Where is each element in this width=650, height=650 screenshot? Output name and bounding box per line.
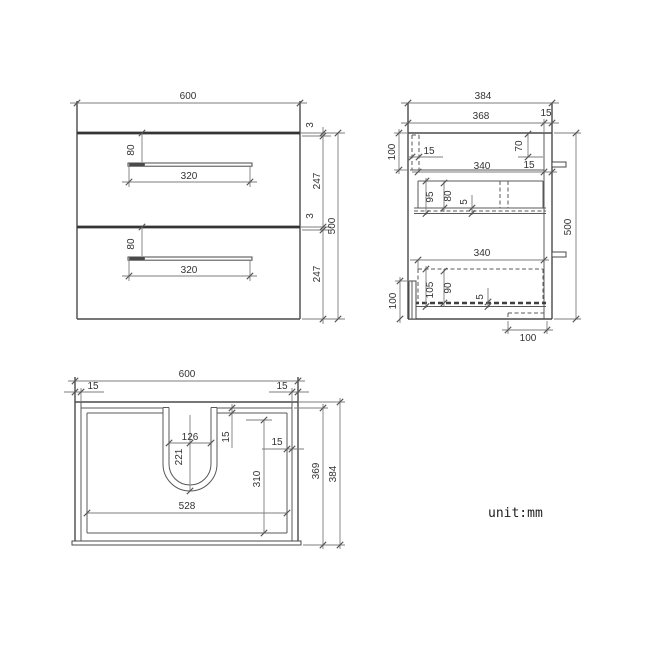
blueprint-page: 600 80 320 80 320 3 247 3 247 500: [0, 0, 650, 650]
front-view-labels: 600 80 320 80 320 3 247 3 247 500: [126, 91, 338, 282]
dim-front-handle-width-1: 320: [181, 171, 198, 182]
dim-top-right-wall: 15: [276, 381, 288, 392]
dim-side-drawer1-side-height: 95: [425, 191, 436, 203]
top-view: 600 15 15 126 221 15 15 310 528 369 384: [64, 369, 345, 549]
dim-top-inner-depth: 369: [311, 462, 322, 479]
dim-top-inner-width: 528: [179, 501, 196, 512]
dim-side-notch-width: 100: [520, 333, 537, 344]
drawer1-handle-cap: [129, 163, 145, 166]
wall-bracket-bottom: [552, 252, 566, 257]
dim-side-drawer2-depth: 340: [474, 248, 491, 259]
top-view-dimensions: [64, 378, 345, 549]
dim-front-mid-gap: 3: [305, 213, 316, 219]
side-view-dimensions: [394, 100, 581, 334]
dim-side-back-panel: 15: [540, 108, 552, 119]
unit-note: unit:mm: [488, 506, 543, 521]
dim-side-top-rail-thickness: 15: [423, 146, 435, 157]
drawing-canvas: 600 80 320 80 320 3 247 3 247 500: [0, 0, 650, 650]
dim-top-left-wall: 15: [87, 381, 99, 392]
bottom-ledge: [72, 541, 301, 545]
dim-front-top-gap: 3: [305, 122, 316, 128]
dim-top-depth: 384: [328, 465, 339, 482]
dim-side-drawer2-bottom: 5: [475, 294, 486, 300]
dim-front-handle-offset-2: 80: [126, 238, 137, 250]
dim-top-cutout-depth: 221: [174, 448, 185, 465]
dim-side-top-rail-height: 100: [387, 143, 398, 160]
dim-front-handle-offset-1: 80: [126, 144, 137, 156]
dim-front-width: 600: [180, 91, 197, 102]
dim-side-drawer1-bottom: 5: [459, 199, 470, 205]
dim-side-drawer2-inner-height: 90: [443, 282, 454, 294]
dim-front-drawer1-height: 247: [312, 172, 323, 189]
dim-front-height: 500: [327, 217, 338, 234]
drawer2-handle: [128, 257, 252, 260]
dim-side-drawer1-inner-height: 80: [443, 190, 454, 202]
dim-side-height: 500: [563, 218, 574, 235]
wall-bracket-top: [552, 162, 566, 167]
front-view-linework: [77, 101, 300, 319]
dim-side-drawer1-depth: 340: [474, 161, 491, 172]
dim-side-bracket-offset: 70: [514, 140, 525, 152]
dim-side-bottom-rail-height: 100: [388, 292, 399, 309]
dim-top-width: 600: [179, 369, 196, 380]
dim-side-depth: 384: [475, 91, 492, 102]
front-view: 600 80 320 80 320 3 247 3 247 500: [70, 91, 345, 324]
dim-front-drawer2-height: 247: [312, 265, 323, 282]
dim-top-clear-depth: 310: [252, 470, 263, 487]
dim-top-side-clearance: 15: [271, 437, 283, 448]
dim-side-drawer2-side-height: 105: [425, 281, 436, 298]
dim-front-handle-width-2: 320: [181, 265, 198, 276]
top-view-linework: [72, 377, 301, 545]
side-view: 384 368 15 100 15 70 340 15 95 80 5 500 …: [387, 91, 581, 344]
dim-side-bracket-gap: 15: [523, 160, 535, 171]
drawer1-handle: [128, 163, 252, 166]
drawer2-handle-cap: [129, 257, 145, 260]
dim-top-back-rail: 15: [221, 431, 232, 443]
dim-side-inner-depth: 368: [473, 111, 490, 122]
dim-top-cutout-width: 126: [182, 432, 199, 443]
